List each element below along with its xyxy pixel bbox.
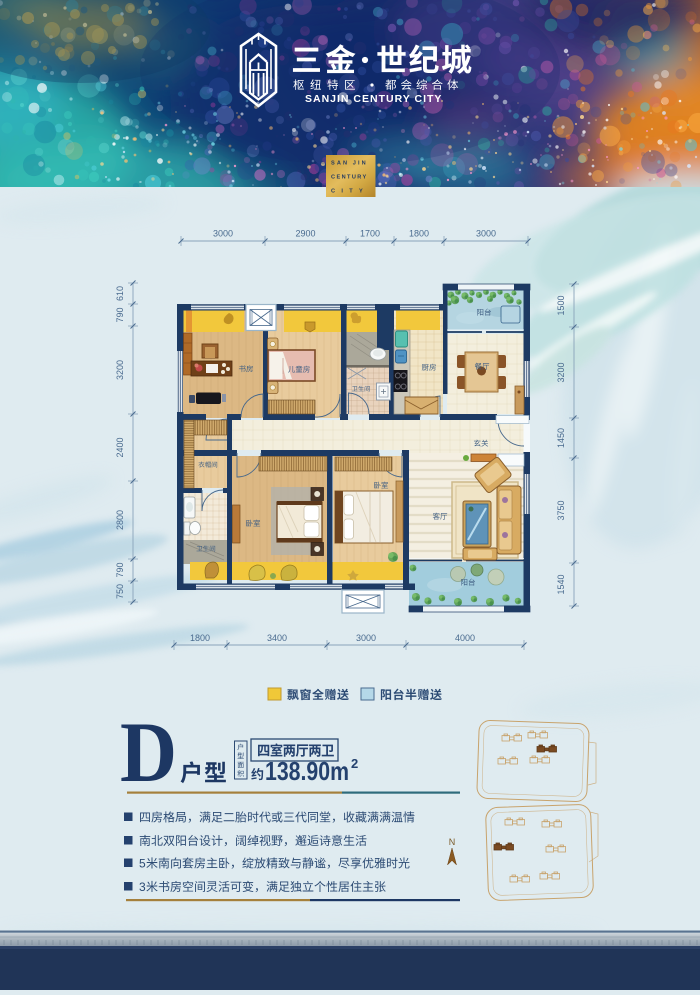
- svg-text:2: 2: [351, 756, 358, 771]
- svg-text:1800: 1800: [409, 229, 429, 239]
- svg-text:790: 790: [115, 562, 125, 577]
- svg-text:1500: 1500: [556, 295, 566, 315]
- svg-text:2400: 2400: [115, 437, 125, 457]
- svg-text:1540: 1540: [556, 574, 566, 594]
- svg-text:138.90m: 138.90m: [265, 756, 349, 786]
- svg-text:3000: 3000: [356, 633, 376, 643]
- svg-text:3750: 3750: [556, 500, 566, 520]
- svg-text:2800: 2800: [115, 510, 125, 530]
- svg-text:N: N: [449, 837, 456, 847]
- svg-text:3: 3: [139, 880, 146, 894]
- svg-text:1800: 1800: [190, 633, 210, 643]
- svg-text:3400: 3400: [267, 633, 287, 643]
- svg-text:3000: 3000: [213, 229, 233, 239]
- svg-text:790: 790: [115, 307, 125, 322]
- svg-text:SAN JIN: SAN JIN: [331, 161, 368, 167]
- svg-text:2900: 2900: [295, 229, 315, 239]
- svg-text:D: D: [120, 704, 177, 800]
- svg-text:610: 610: [115, 286, 125, 301]
- svg-text:750: 750: [115, 584, 125, 599]
- svg-text:3200: 3200: [556, 362, 566, 382]
- svg-text:CENTURY: CENTURY: [331, 175, 368, 181]
- svg-text:3200: 3200: [115, 360, 125, 380]
- svg-text:C I T Y: C I T Y: [331, 189, 365, 195]
- svg-text:SANJIN CENTURY CITY: SANJIN CENTURY CITY: [305, 93, 442, 105]
- svg-text:4000: 4000: [455, 633, 475, 643]
- svg-text:1700: 1700: [360, 229, 380, 239]
- svg-text:5: 5: [139, 857, 146, 871]
- svg-text:1450: 1450: [556, 428, 566, 448]
- svg-text:3000: 3000: [476, 229, 496, 239]
